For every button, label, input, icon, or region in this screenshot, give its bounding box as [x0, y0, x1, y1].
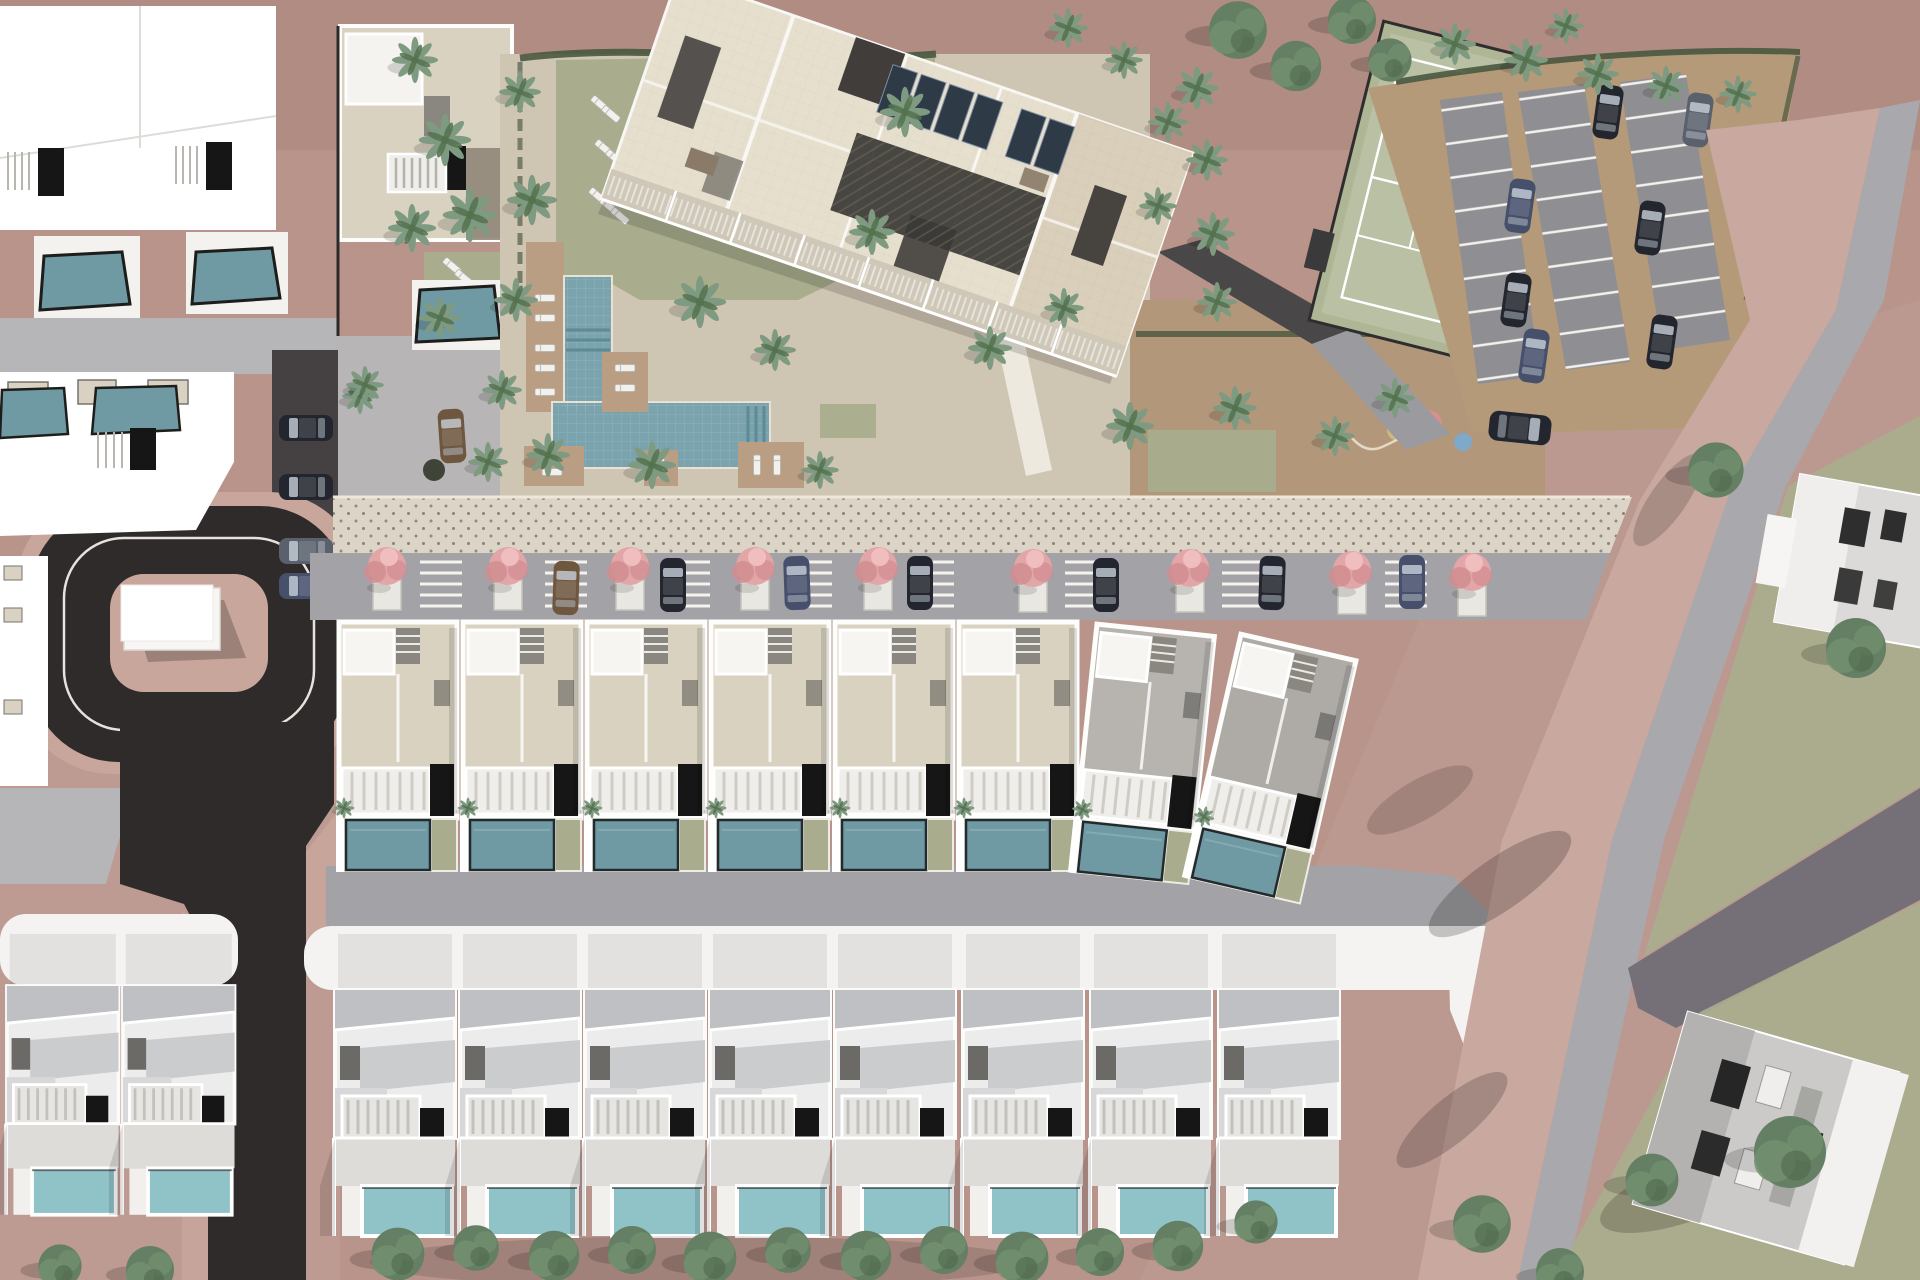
- playground-circle-blue: [1454, 433, 1472, 451]
- villa-block-nw: [0, 6, 276, 230]
- sun-lounger: [535, 315, 555, 322]
- private-pool: [192, 248, 280, 304]
- street-parked-car: [1399, 555, 1425, 609]
- window-accent: [38, 148, 64, 196]
- street-parked-car: [907, 556, 933, 610]
- sun-lounger: [615, 385, 635, 392]
- rear-lane: [326, 866, 1510, 932]
- sun-lounger: [754, 455, 761, 475]
- sun-lounger: [774, 455, 781, 475]
- villa-middle-row: [704, 622, 831, 872]
- window: [4, 566, 22, 580]
- street-parked-car: [1093, 558, 1119, 612]
- pool-boardwalk: [526, 242, 564, 412]
- sun-lounger: [615, 365, 635, 372]
- sun-lounger: [535, 295, 555, 302]
- parked-car: [437, 408, 467, 464]
- window-accent: [206, 142, 232, 190]
- promenade-texture: [333, 497, 1632, 553]
- villa-middle-row: [952, 622, 1079, 872]
- parked-car: [279, 415, 333, 441]
- street-parked-car: [783, 556, 811, 611]
- scene-root: [0, 0, 1920, 1280]
- sun-lounger: [535, 365, 555, 372]
- street-parked-car: [660, 558, 686, 612]
- villa-bottom-left: [0, 934, 119, 1215]
- site-plan-render: [0, 0, 1920, 1280]
- pool-deck: [738, 442, 804, 488]
- villa-middle-row: [332, 622, 459, 872]
- street-parked-car: [552, 561, 580, 616]
- villa-middle-row: [456, 622, 583, 872]
- lawn-patch: [820, 404, 876, 438]
- window: [4, 700, 22, 714]
- masterplan-screenshot: [0, 0, 1920, 1280]
- lawn-patch: [1148, 430, 1276, 492]
- villa-middle-row: [580, 622, 707, 872]
- villa-middle-row: [828, 622, 955, 872]
- private-pool: [40, 252, 130, 310]
- street-parked-car: [1258, 556, 1286, 611]
- island-building-roof: [121, 585, 213, 641]
- parked-car: [279, 474, 333, 500]
- pool-island-deck: [602, 352, 648, 412]
- sun-lounger: [535, 389, 555, 396]
- private-pool: [92, 386, 180, 434]
- private-pool: [0, 388, 68, 438]
- villa-block-sw-edge: [0, 556, 48, 786]
- window-accent: [130, 428, 156, 470]
- shrub: [423, 459, 445, 481]
- window: [4, 608, 22, 622]
- sun-lounger: [535, 345, 555, 352]
